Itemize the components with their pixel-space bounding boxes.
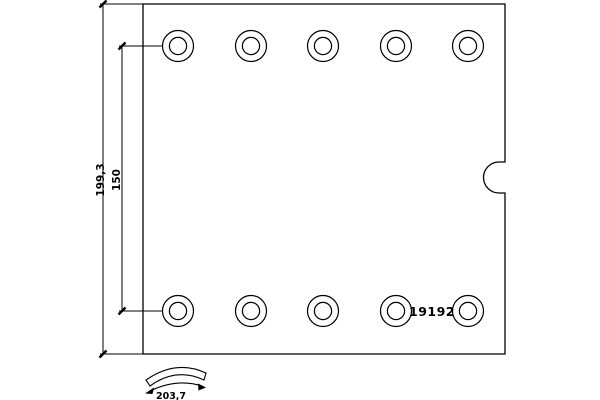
rivet-hole [453,296,484,327]
rivet-hole [381,296,412,327]
arrowhead-left-icon [145,388,154,395]
rivet-hole [163,296,194,327]
technical-drawing: 199,3 150 19192 203,7 [0,0,600,400]
rivet-hole [381,31,412,62]
overall-height-label: 199,3 [95,163,107,196]
rivet-hole [236,31,267,62]
arrowhead-right-icon [198,384,206,391]
drawing-canvas: 199,3 150 19192 203,7 [0,0,600,400]
rivet-hole [308,296,339,327]
rivet-hole [308,31,339,62]
hole-spacing-label: 150 [111,169,123,191]
rivet-hole [163,31,194,62]
rivet-hole [453,31,484,62]
part-number-label: 19192 [409,304,455,319]
arc-width-label: 203,7 [156,391,186,400]
rivet-hole [236,296,267,327]
